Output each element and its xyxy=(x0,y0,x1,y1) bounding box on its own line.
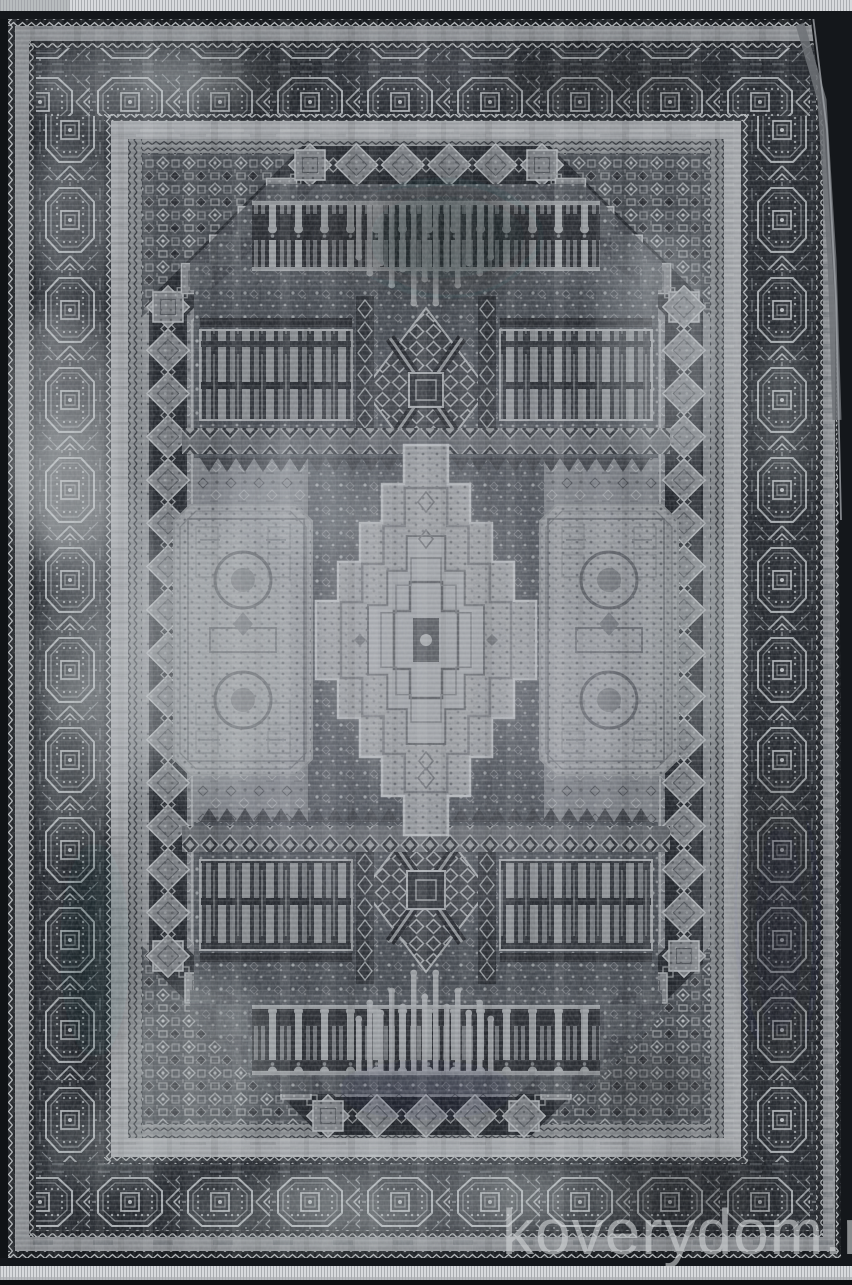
svg-text:koverydom.ru: koverydom.ru xyxy=(502,1196,852,1268)
